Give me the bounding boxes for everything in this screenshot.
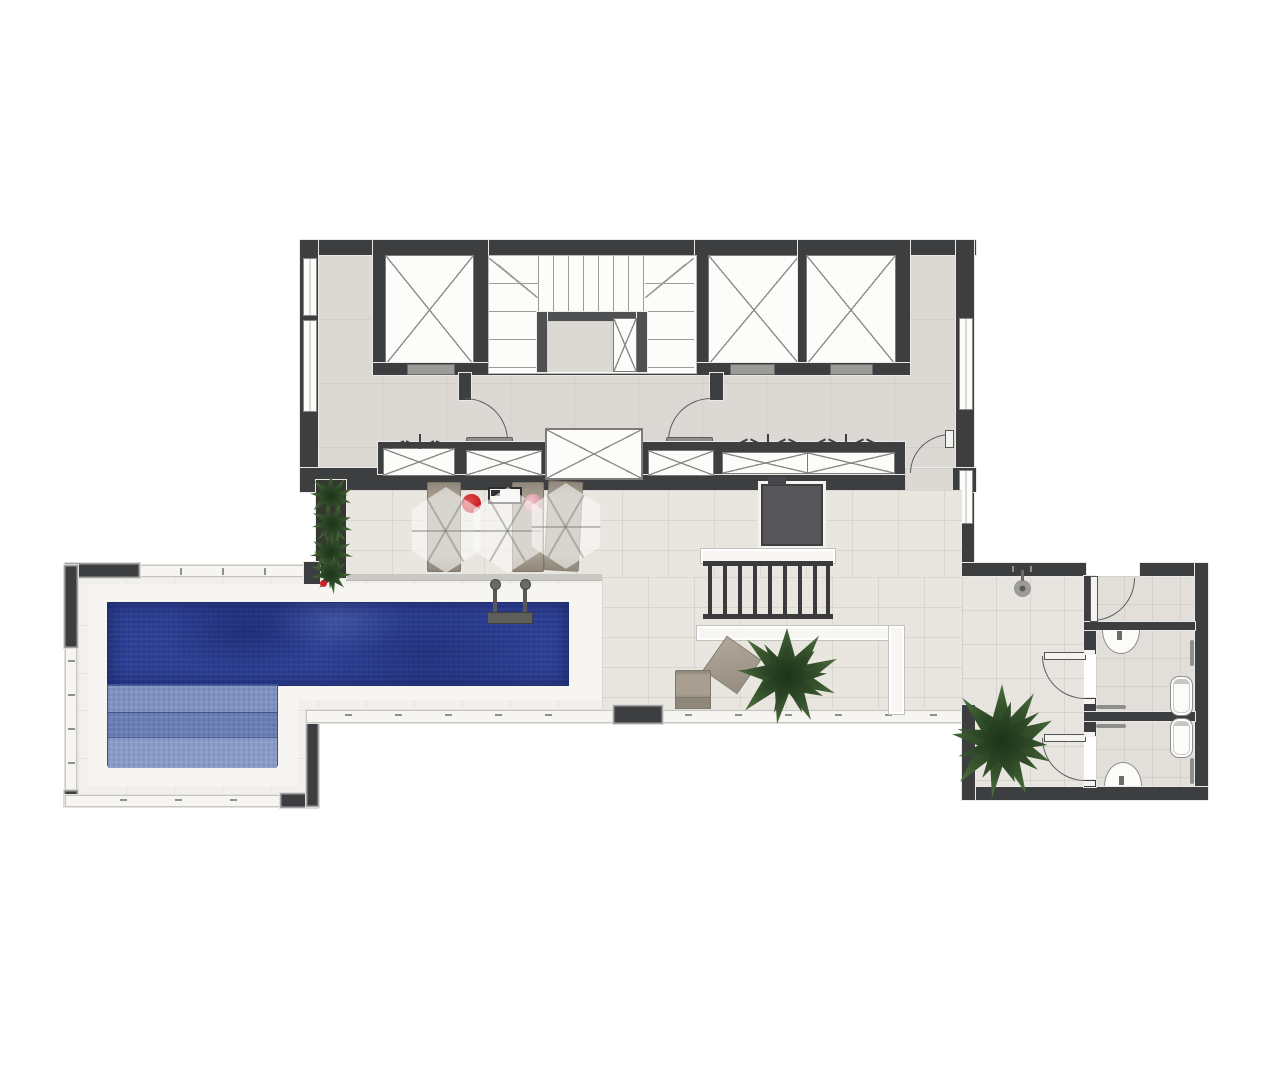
- bifold-pivot: [845, 434, 847, 446]
- rail-clamp: [120, 799, 127, 801]
- restroom-wall-right: [1195, 563, 1208, 800]
- restroom-partition: [1084, 622, 1195, 630]
- bench-l-vertical: [888, 625, 905, 715]
- spa-notch: [768, 477, 786, 485]
- closet-bay: [722, 452, 809, 474]
- rail-clamp: [395, 714, 402, 716]
- pool-step-band: [108, 737, 277, 768]
- elevator-2-door-sill: [730, 364, 775, 375]
- exit-door-leaf: [945, 430, 954, 448]
- door-jamb: [1084, 699, 1095, 704]
- stair-landing-wall: [537, 312, 547, 372]
- elevator-3-door-sill: [830, 364, 873, 375]
- door-jamb: [1084, 732, 1095, 737]
- rail-clamp: [230, 799, 237, 801]
- pergola-slat: [813, 561, 817, 619]
- pergola-slat: [753, 561, 757, 619]
- pergola-slat: [708, 561, 712, 619]
- rail-clamp: [930, 714, 937, 716]
- door-stub-wall: [459, 373, 471, 400]
- elevator-2-shaft: [708, 255, 800, 365]
- shower-arm: [1021, 570, 1024, 581]
- parapet-step-wall: [306, 710, 319, 807]
- shower-valve: [1012, 566, 1014, 572]
- rail-clamp: [68, 728, 75, 730]
- spa-hatch: [758, 481, 826, 549]
- stair-splay-line: [645, 264, 686, 298]
- window: [303, 258, 317, 316]
- door-jamb: [1084, 650, 1095, 655]
- low-chair-back: [675, 697, 711, 709]
- closet-bay: [648, 450, 714, 476]
- elevator-3-shaft: [806, 255, 896, 365]
- potted-plant: [737, 628, 837, 724]
- rail-clamp: [180, 568, 182, 575]
- bifold-door-mark: [420, 430, 450, 450]
- washroom-2-tap: [1119, 776, 1124, 785]
- pool-ladder-post: [520, 579, 531, 590]
- closet-bay: [383, 448, 455, 476]
- pergola-slat: [723, 561, 727, 619]
- bifold-pivot: [767, 434, 769, 446]
- door-stub-wall: [710, 373, 723, 400]
- bifold-pivot: [419, 434, 421, 446]
- window: [959, 318, 973, 410]
- rail-clamp: [68, 762, 75, 764]
- washroom-1-grab-bar: [1190, 640, 1194, 666]
- bifold-door-mark: [390, 430, 420, 450]
- restroom-wall-top: [962, 563, 1086, 576]
- elevator-1-door-sill: [407, 364, 455, 375]
- outdoor-shower-head: [1014, 580, 1031, 597]
- pool-ladder-step: [487, 612, 533, 624]
- parapet-south-block: [613, 705, 663, 724]
- shower-valve: [1030, 566, 1032, 572]
- stair-service-shaft: [613, 318, 637, 372]
- pool-step-band: [108, 685, 277, 713]
- rail-clamp: [495, 714, 502, 716]
- rail-clamp: [68, 660, 75, 662]
- rail-clamp: [445, 714, 452, 716]
- rail-clamp: [222, 568, 224, 575]
- pergola-slat: [798, 561, 802, 619]
- pool-step-band: [108, 712, 277, 738]
- pergola-slat: [826, 561, 830, 619]
- rail-clamp: [685, 714, 692, 716]
- rail-clamp: [175, 799, 182, 801]
- closet-bay: [466, 450, 542, 476]
- bifold-door-mark: [730, 430, 768, 450]
- closet-bay-center: [545, 428, 643, 480]
- closet-bay: [807, 452, 895, 474]
- rail-clamp: [545, 714, 552, 716]
- deck-edge-curb: [346, 574, 602, 580]
- low-chair-seat: [675, 670, 711, 700]
- pool-steps: [107, 684, 278, 766]
- pool-ladder-post: [490, 579, 501, 590]
- pergola-slat: [738, 561, 742, 619]
- parapet-west-cap-top: [64, 565, 78, 648]
- washroom-1-grab-bar: [1096, 705, 1126, 709]
- elevator-1-shaft: [385, 255, 474, 365]
- bifold-door-mark: [768, 430, 806, 450]
- stair-treads-top: [538, 256, 644, 312]
- washroom-2-grab-bar: [1190, 758, 1194, 784]
- storage-door-leaf: [1090, 576, 1098, 622]
- pergola-slat: [783, 561, 787, 619]
- window: [303, 320, 317, 412]
- washroom-2-grab-bar: [1096, 724, 1126, 728]
- stair-landing-wall: [637, 312, 647, 372]
- washroom-1-door-leaf: [1044, 652, 1086, 660]
- washroom-1-tap: [1117, 631, 1122, 640]
- rail-clamp: [68, 694, 75, 696]
- door-jamb: [1084, 781, 1095, 786]
- floor-plan: [0, 0, 1280, 1066]
- pergola-slat: [768, 561, 772, 619]
- potted-plant: [952, 684, 1052, 798]
- rail-clamp: [264, 568, 266, 575]
- bifold-door-mark: [808, 430, 846, 450]
- stair-splay-line: [497, 264, 538, 298]
- bifold-door-mark: [846, 430, 884, 450]
- washroom-2-toilet: [1170, 718, 1193, 758]
- planter-flower: [320, 580, 327, 587]
- rail-clamp: [345, 714, 352, 716]
- washroom-1-toilet: [1170, 676, 1193, 716]
